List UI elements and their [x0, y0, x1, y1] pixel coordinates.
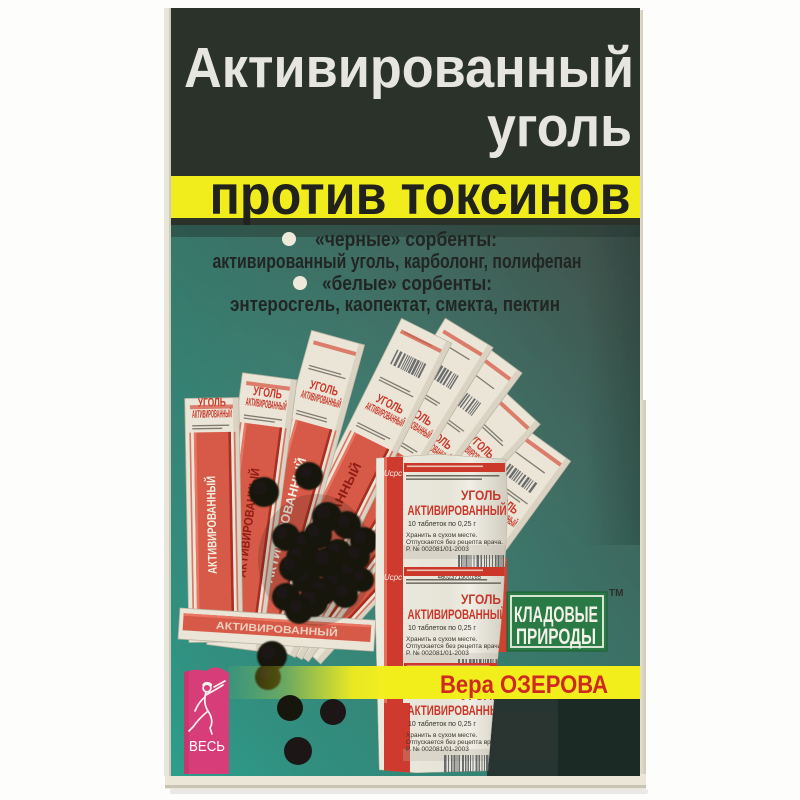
svg-text:АКТИВИРОВАННЫЙ: АКТИВИРОВАННЫЙ	[408, 605, 507, 622]
svg-text:активированный уголь, карболон: активированный уголь, карболонг, полифеп…	[213, 251, 582, 273]
svg-text:Ucpc: Ucpc	[384, 469, 402, 478]
svg-text:10 таблеток по 0,25 г: 10 таблеток по 0,25 г	[408, 720, 476, 728]
svg-text:АКТИВИРОВАННЫЙ: АКТИВИРОВАННЫЙ	[203, 476, 220, 574]
svg-text:Р. № 002081/01-2003: Р. № 002081/01-2003	[406, 546, 469, 553]
svg-text:ВЕСЬ: ВЕСЬ	[189, 738, 225, 755]
svg-text:АКТИВИРОВАННЫЙ: АКТИВИРОВАННЫЙ	[408, 701, 507, 718]
svg-text:Вера ОЗЕРОВА: Вера ОЗЕРОВА	[440, 671, 608, 699]
svg-text:против токсинов: против токсинов	[210, 163, 631, 226]
svg-text:«черные» сорбенты:: «черные» сорбенты:	[315, 229, 497, 251]
svg-text:Хранить в сухом месте.: Хранить в сухом месте.	[406, 732, 478, 739]
svg-text:Ucpc: Ucpc	[384, 573, 402, 582]
svg-text:Отпускается без рецепта врача.: Отпускается без рецепта врача.	[406, 738, 503, 746]
svg-text:Хранить в сухом месте.: Хранить в сухом месте.	[406, 532, 478, 539]
svg-text:Отпускается без рецепта врача.: Отпускается без рецепта врача.	[406, 538, 503, 546]
svg-text:АКТИВИРОВАННЫЙ: АКТИВИРОВАННЫЙ	[192, 407, 232, 421]
svg-text:УГОЛЬ: УГОЛЬ	[461, 591, 501, 607]
svg-text:энтеросгель, каопектат, смекта: энтеросгель, каопектат, смекта, пектин	[230, 294, 560, 316]
svg-text:TM: TM	[609, 588, 623, 599]
svg-text:ПРИРОДЫ: ПРИРОДЫ	[516, 624, 596, 649]
svg-text:АКТИВИРОВАННЫЙ: АКТИВИРОВАННЫЙ	[408, 501, 507, 518]
svg-text:Р. № 002081/01-2003: Р. № 002081/01-2003	[406, 746, 469, 753]
svg-text:10 таблеток по 0,25 г: 10 таблеток по 0,25 г	[408, 624, 476, 632]
svg-text:УГОЛЬ: УГОЛЬ	[461, 487, 501, 503]
svg-text:«белые» сорбенты:: «белые» сорбенты:	[322, 273, 492, 295]
svg-text:10 таблеток по 0,25 г: 10 таблеток по 0,25 г	[408, 520, 476, 528]
svg-text:Р. № 002081/01-2003: Р. № 002081/01-2003	[406, 650, 469, 657]
svg-text:Отпускается без рецепта врача.: Отпускается без рецепта врача.	[406, 642, 503, 650]
svg-text:Активированный: Активированный	[184, 36, 634, 100]
svg-text:уголь: уголь	[487, 95, 632, 159]
svg-text:Хранить в сухом месте.: Хранить в сухом месте.	[406, 636, 478, 643]
